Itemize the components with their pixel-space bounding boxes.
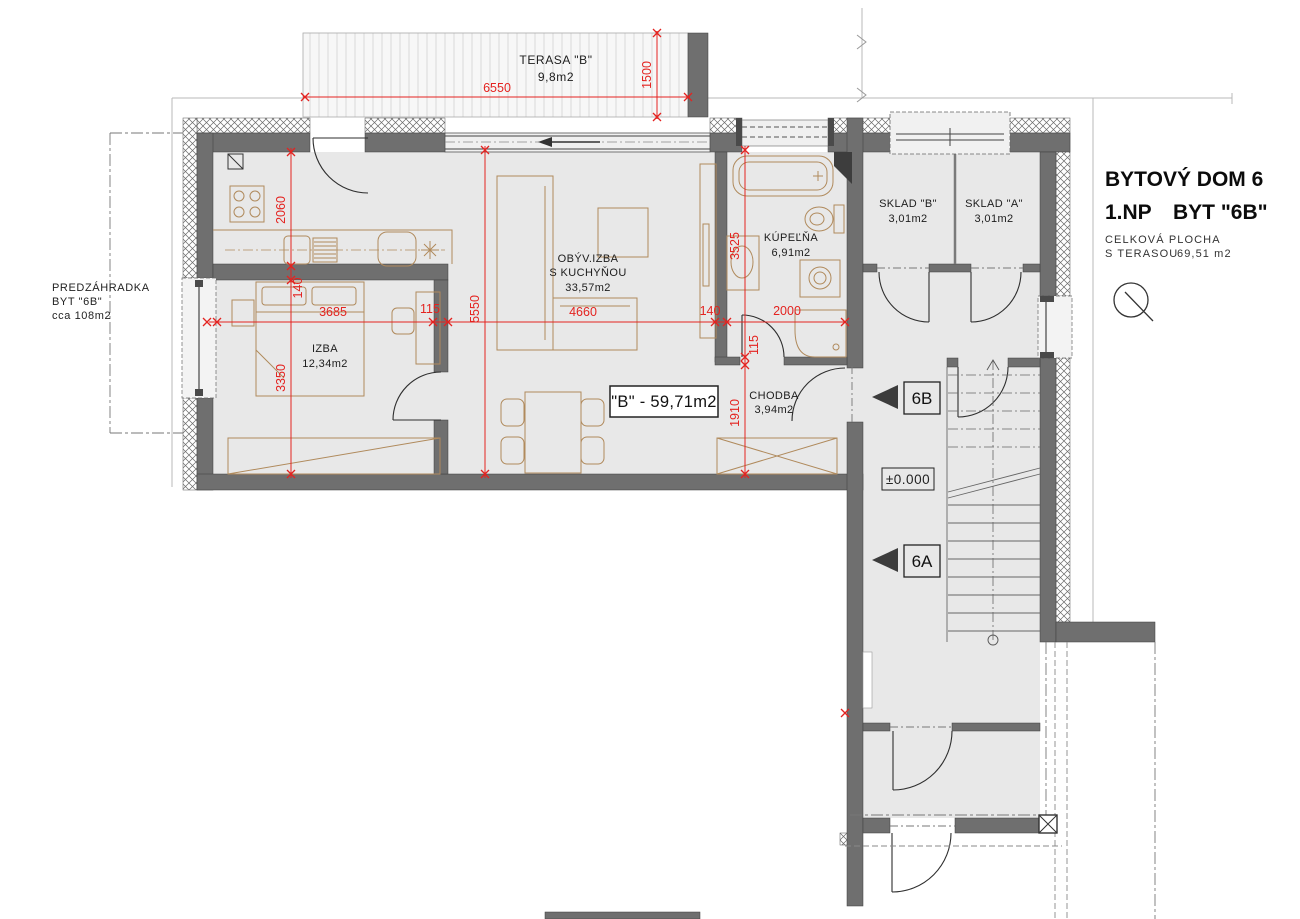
level-marker: ±0.000 xyxy=(886,472,930,487)
apartment-area-label: "B" - 59,71m2 xyxy=(611,393,717,411)
neighbor-wall-fragment xyxy=(545,912,700,919)
bathroom-window xyxy=(736,118,834,146)
living-name-1: OBÝV.IZBA xyxy=(558,252,619,265)
front-garden-3: cca 108m2 xyxy=(52,310,111,322)
orientation-icon xyxy=(1114,283,1148,317)
dim-bedroom-width: 3685 xyxy=(319,305,347,319)
storage-a-area: 3,01m2 xyxy=(974,213,1013,225)
bedroom-area: 12,34m2 xyxy=(302,358,348,370)
dim-bathroom-width: 2000 xyxy=(773,304,801,318)
storage-window xyxy=(890,112,1010,154)
dim-wall-140a: 140 xyxy=(291,278,305,299)
dim-wall-140b: 140 xyxy=(700,304,721,318)
bathroom-area: 6,91m2 xyxy=(771,247,810,259)
storage-a-name: SKLAD "A" xyxy=(965,198,1023,210)
area-note-1: CELKOVÁ PLOCHA xyxy=(1105,233,1221,246)
dim-terrace-depth: 1500 xyxy=(640,61,654,89)
dim-bedroom-depth: 3350 xyxy=(274,364,288,392)
dim-living-depth: 5550 xyxy=(468,295,482,323)
title-block: BYTOVÝ DOM 6 1.NP BYT "6B" CELKOVÁ PLOCH… xyxy=(1105,167,1268,321)
dishwasher xyxy=(313,238,337,262)
unit-label: BYT "6B" xyxy=(1173,201,1268,224)
dim-kitchen-depth: 2060 xyxy=(274,196,288,224)
dim-hallway-depth: 1910 xyxy=(728,399,742,427)
hallway-name: CHODBA xyxy=(749,390,799,402)
wall-niche xyxy=(863,652,872,708)
building-title: BYTOVÝ DOM 6 xyxy=(1105,167,1263,191)
storage-b-area: 3,01m2 xyxy=(888,213,927,225)
front-garden-2: BYT "6B" xyxy=(52,296,102,308)
bathroom-name: KÚPEĽŇA xyxy=(764,231,818,244)
floor-plan-drawing: 6550 1500 2060 140 3350 3685 115 4660 14… xyxy=(0,0,1300,919)
unit-b-marker: 6B xyxy=(912,389,933,408)
dim-wall-115b: 115 xyxy=(747,335,761,355)
bedroom-window xyxy=(182,278,216,398)
living-area: 33,57m2 xyxy=(565,282,611,294)
exterior-wall-stub xyxy=(1056,622,1155,642)
building-entrance-door xyxy=(890,826,955,892)
living-name-2: S KUCHYŇOU xyxy=(549,266,626,279)
total-area-value: 69,51 m2 xyxy=(1177,248,1232,260)
dim-bathroom-depth: 3525 xyxy=(728,232,742,260)
floor-plan-page: 6550 1500 2060 140 3350 3685 115 4660 14… xyxy=(0,0,1300,919)
unit-a-marker: 6A xyxy=(912,552,933,571)
front-garden-1: PREDZÁHRADKA xyxy=(52,281,150,294)
floor-label: 1.NP xyxy=(1105,201,1152,224)
terrace-pillar xyxy=(688,33,708,117)
hallway-area: 3,94m2 xyxy=(754,404,793,416)
staircase-window xyxy=(1038,296,1072,358)
storage-b-name: SKLAD "B" xyxy=(879,198,937,210)
dim-terrace-width: 6550 xyxy=(483,81,511,95)
dim-living-width: 4660 xyxy=(569,305,597,319)
area-note-2: S TERASOU xyxy=(1105,248,1178,260)
dim-wall-115a: 115 xyxy=(420,302,440,316)
bedroom-name: IZBA xyxy=(312,343,338,355)
terrace-area: 9,8m2 xyxy=(538,70,574,84)
terrace-name: TERASA "B" xyxy=(519,53,592,67)
